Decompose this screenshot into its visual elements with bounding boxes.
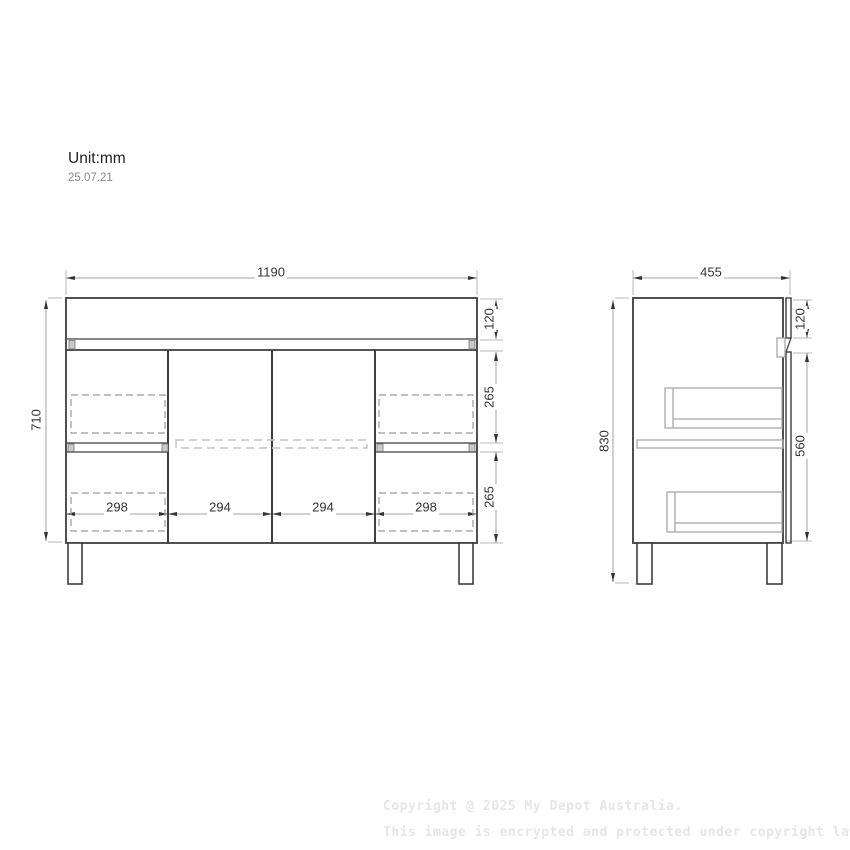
dim-front-overall-width: 1190 bbox=[255, 265, 287, 280]
date-label: 25.07.21 bbox=[68, 172, 113, 184]
dim-side-benchtop-height: 120 bbox=[793, 306, 808, 332]
dim-front-left-drawer-width: 298 bbox=[104, 500, 130, 515]
side-internal-drawer-profiles bbox=[637, 338, 785, 532]
dim-front-right-door-width: 294 bbox=[310, 500, 336, 515]
dim-front-right-drawer-width: 298 bbox=[413, 500, 439, 515]
side-view-outline bbox=[633, 298, 791, 543]
watermark-line-1: Copyright @ 2025 My Depot Australia. bbox=[383, 799, 683, 814]
dim-side-overall-depth: 455 bbox=[698, 265, 724, 280]
dim-side-carcass-height: 560 bbox=[793, 433, 808, 459]
unit-label: Unit:mm bbox=[68, 150, 126, 168]
dimension-lines bbox=[46, 278, 807, 582]
dim-front-overall-height: 710 bbox=[29, 407, 44, 433]
dimension-arrowheads bbox=[44, 276, 809, 582]
drawing-canvas bbox=[0, 0, 850, 850]
side-legs bbox=[637, 543, 782, 584]
technical-drawing-page: Unit:mm 25.07.21 1190 710 120 265 265 29… bbox=[0, 0, 850, 850]
dim-front-benchtop-height: 120 bbox=[482, 306, 497, 332]
extension-lines bbox=[48, 270, 812, 583]
dim-side-overall-height: 830 bbox=[597, 428, 612, 454]
dim-front-left-door-width: 294 bbox=[207, 500, 233, 515]
watermark-line-2: This image is encrypted and protected un… bbox=[383, 825, 850, 840]
dim-front-lower-drawer-height: 265 bbox=[482, 484, 497, 510]
front-legs bbox=[68, 543, 473, 584]
dim-front-upper-drawer-height: 265 bbox=[482, 384, 497, 410]
